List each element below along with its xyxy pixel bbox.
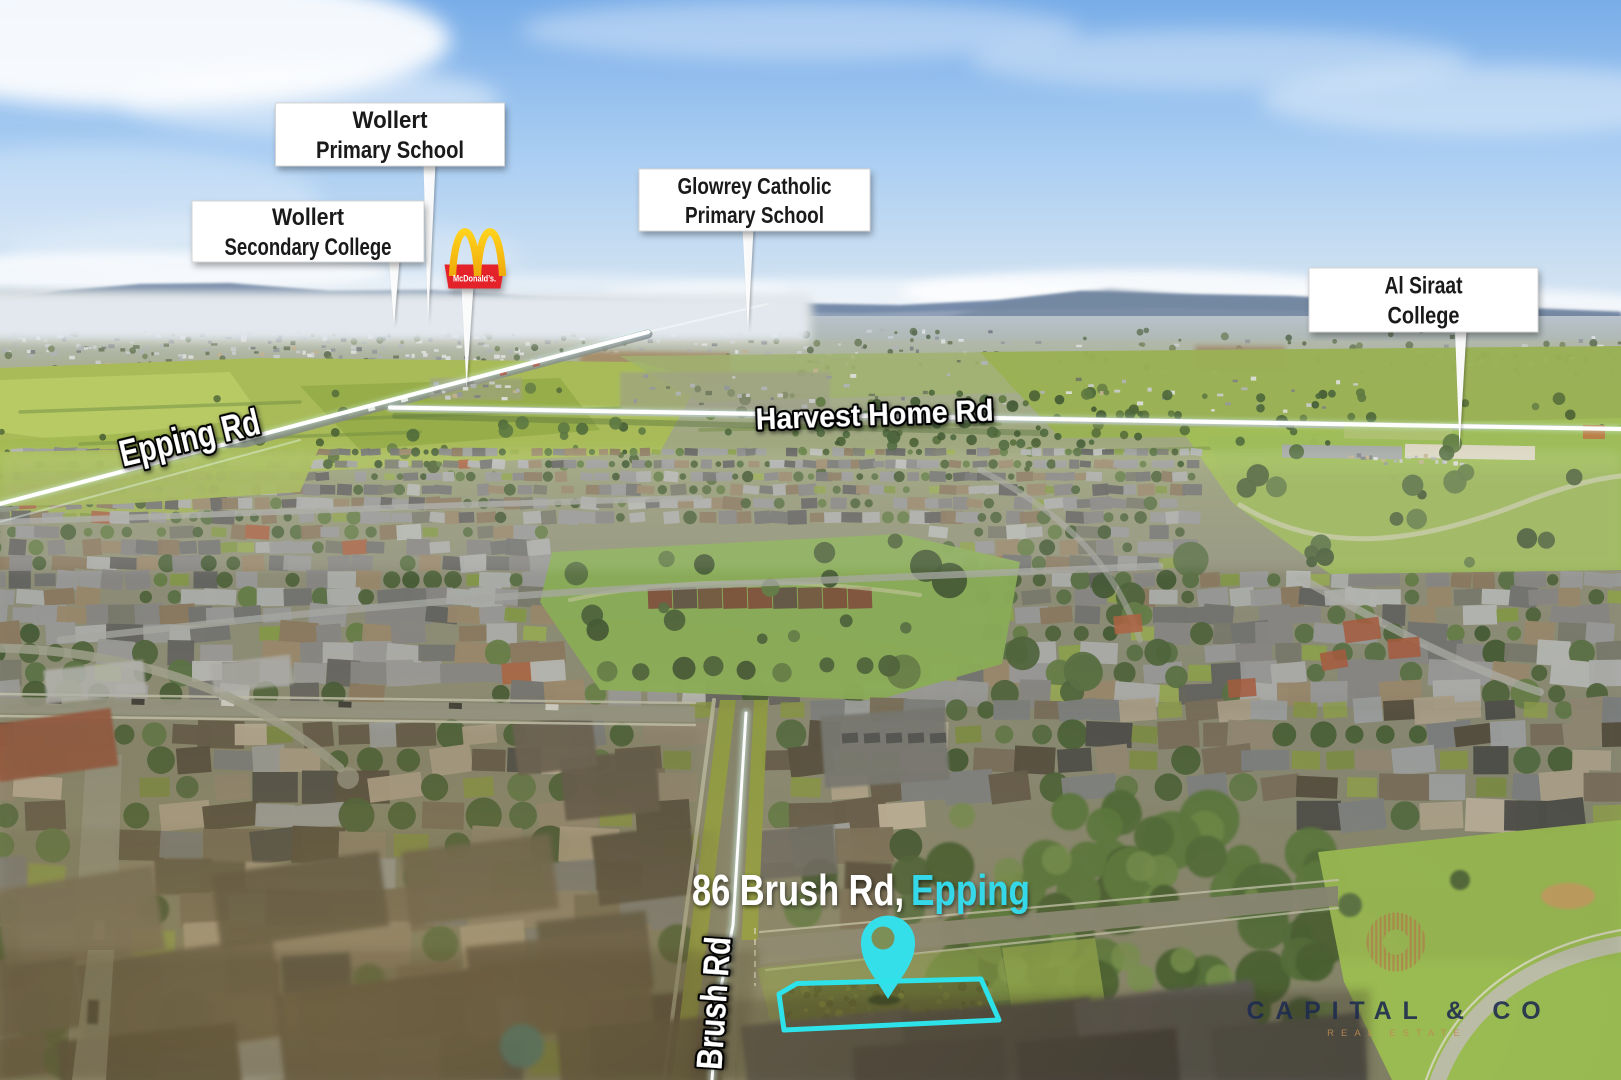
svg-text:Primary School: Primary School <box>685 202 824 228</box>
svg-text:REAL ESTATE: REAL ESTATE <box>1327 1028 1467 1039</box>
svg-text:College: College <box>1388 303 1460 330</box>
svg-text:Primary School: Primary School <box>316 137 464 164</box>
svg-text:Al Siraat: Al Siraat <box>1385 273 1463 300</box>
svg-text:Secondary College: Secondary College <box>225 234 392 261</box>
svg-text:Epping: Epping <box>911 866 1030 915</box>
svg-text:86 Brush Rd,: 86 Brush Rd, <box>692 866 904 915</box>
svg-text:Wollert: Wollert <box>353 107 428 134</box>
svg-text:McDonald’s.: McDonald’s. <box>453 274 496 284</box>
svg-text:CAPITAL & CO: CAPITAL & CO <box>1246 997 1551 1025</box>
svg-text:Wollert: Wollert <box>272 204 344 231</box>
svg-text:Glowrey Catholic: Glowrey Catholic <box>678 173 832 199</box>
